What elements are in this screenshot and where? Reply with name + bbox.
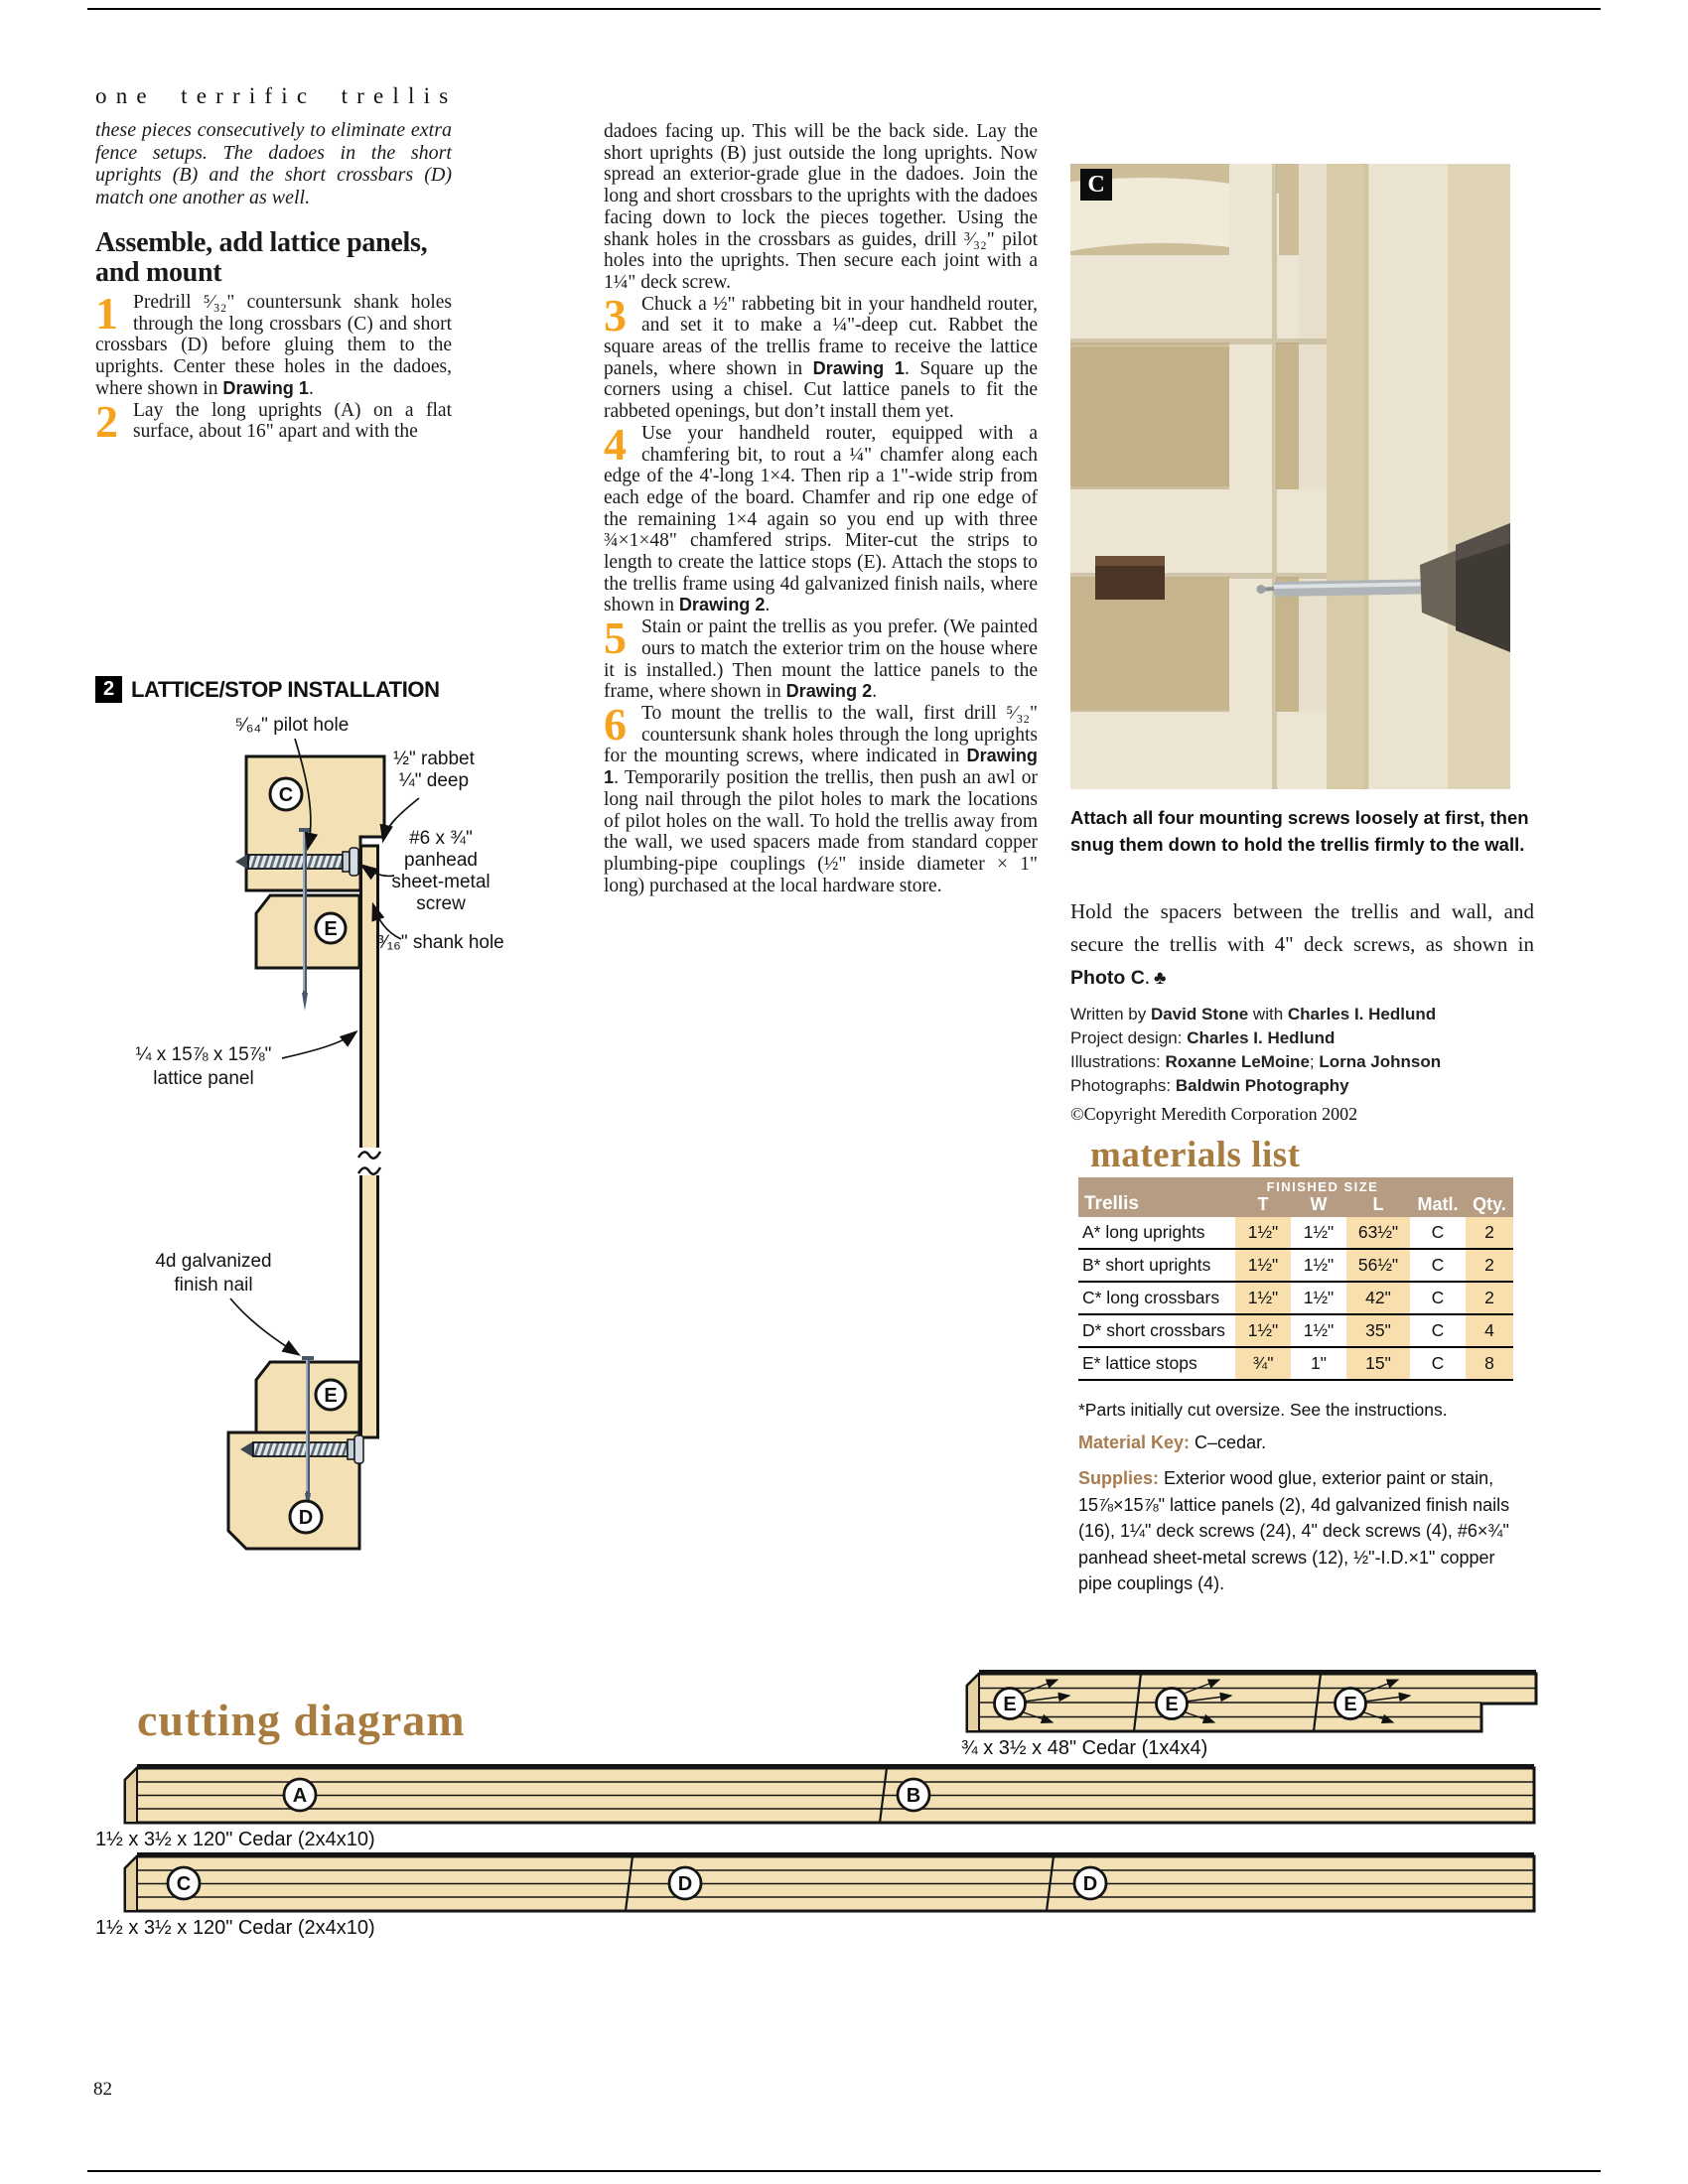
part-w: 1½": [1291, 1282, 1346, 1314]
part-t: 1½": [1235, 1314, 1291, 1347]
photo-caption: Attach all four mounting screws loosely …: [1070, 804, 1529, 858]
materials-list-title: materials list: [1090, 1134, 1300, 1176]
table-row: C* long crossbars 1½" 1½" 42" C 2: [1078, 1282, 1513, 1314]
step-5-number: 5: [604, 619, 635, 657]
part-matl: C: [1410, 1314, 1466, 1347]
part-qty: 8: [1466, 1347, 1513, 1380]
board-part-letter: A: [293, 1785, 307, 1807]
figure-title: LATTICE/STOP INSTALLATION: [131, 677, 440, 703]
part-circle-e-top: E: [316, 913, 346, 943]
closing-text: Hold the spacers between the trellis and…: [1070, 899, 1534, 989]
photo-c: C: [1070, 164, 1510, 789]
nail-label-line2: finish nail: [174, 1275, 252, 1296]
step-5-text: Stain or paint the trellis as you prefer…: [604, 616, 1038, 702]
middle-column: dadoes facing up. This will be the back …: [604, 121, 1038, 896]
step-2: 2Lay the long uprights (A) on a flat sur…: [95, 400, 452, 443]
part-l: 35": [1346, 1314, 1410, 1347]
part-l: 56½": [1346, 1249, 1410, 1282]
header-finished-size: FINISHED SIZE: [1235, 1177, 1410, 1194]
table-row: D* short crossbars 1½" 1½" 35" C 4: [1078, 1314, 1513, 1347]
board-part-letter: E: [1003, 1694, 1016, 1715]
figure-number-badge: 2: [95, 676, 122, 703]
header-matl: Matl.: [1410, 1177, 1466, 1217]
board-part-letter: E: [1165, 1694, 1178, 1715]
part-l: 63½": [1346, 1217, 1410, 1249]
table-row: B* short uprights 1½" 1½" 56½" C 2: [1078, 1249, 1513, 1282]
part-name: D* short crossbars: [1078, 1314, 1235, 1347]
part-t: 1½": [1235, 1282, 1291, 1314]
copper-spacer: [1095, 556, 1165, 600]
board-c-d-d-caption: 1½ x 3½ x 120" Cedar (2x4x10): [95, 1917, 375, 1940]
header-w: W: [1291, 1194, 1346, 1217]
figure-header: 2 LATTICE/STOP INSTALLATION: [95, 676, 440, 703]
board-e: E E E: [967, 1673, 1536, 1732]
part-circle-d: D: [290, 1501, 322, 1533]
page-number: 82: [93, 2079, 112, 2101]
closing-paragraph: Hold the spacers between the trellis and…: [1070, 895, 1534, 995]
materials-footnote: *Parts initially cut oversize. See the i…: [1078, 1400, 1448, 1421]
step-2-text: Lay the long uprights (A) on a flat surf…: [133, 400, 452, 443]
lattice-panel-label-line1: ¼ x 15⅞ x 15⅞": [136, 1044, 272, 1065]
cutting-diagram-boards: E E E A B: [91, 1660, 1549, 1961]
part-qty: 2: [1466, 1217, 1513, 1249]
part-letter-d: D: [299, 1507, 313, 1529]
pilot-hole-label: ⁵⁄₆₄" pilot hole: [235, 715, 350, 736]
part-matl: C: [1410, 1347, 1466, 1380]
step-1-text: Predrill ⁵⁄₃₂" countersunk shank holes t…: [95, 292, 452, 399]
part-t: ¾": [1235, 1347, 1291, 1380]
article-title: one terrific trellis: [95, 83, 457, 109]
material-key-value: C–cedar.: [1190, 1433, 1266, 1452]
header-t: T: [1235, 1194, 1291, 1217]
part-letter-e-top: E: [324, 918, 337, 940]
board-part-letter: D: [678, 1873, 692, 1895]
part-t: 1½": [1235, 1249, 1291, 1282]
screw-label-line3: sheet-metal: [391, 872, 490, 892]
board-part-letter: B: [907, 1785, 920, 1807]
page-bottom-rule: [87, 2170, 1601, 2172]
part-name: C* long crossbars: [1078, 1282, 1235, 1314]
header-trellis: Trellis: [1078, 1177, 1235, 1217]
section-heading: Assemble, add lattice panels, and mount: [95, 228, 452, 288]
part-t: 1½": [1235, 1217, 1291, 1249]
page-top-rule: [87, 8, 1601, 10]
board-e-caption: ¾ x 3½ x 48" Cedar (1x4x4): [961, 1737, 1207, 1760]
copyright-line: ©Copyright Meredith Corporation 2002: [1070, 1102, 1532, 1126]
step-3-text: Chuck a ½" rabbeting bit in your handhel…: [604, 294, 1038, 423]
continuation-paragraph: dadoes facing up. This will be the back …: [604, 121, 1038, 294]
step-4: 4Use your handheld router, equipped with…: [604, 423, 1038, 616]
magazine-page: one terrific trellis these pieces consec…: [0, 0, 1688, 2184]
screw-label-line4: screw: [416, 893, 466, 914]
credit-photographs: Photographs: Baldwin Photography: [1070, 1074, 1532, 1098]
supplies-label: Supplies:: [1078, 1468, 1159, 1488]
step-3-number: 3: [604, 297, 635, 335]
part-l: 15": [1346, 1347, 1410, 1380]
left-column: these pieces consecutively to eliminate …: [95, 119, 452, 443]
credit-project-design: Project design: Charles I. Hedlund: [1070, 1026, 1532, 1050]
part-circle-c: C: [270, 778, 302, 810]
table-row: E* lattice stops ¾" 1" 15" C 8: [1078, 1347, 1513, 1380]
continuation-text: dadoes facing up. This will be the back …: [604, 121, 1038, 293]
header-l: L: [1346, 1194, 1410, 1217]
step-6: 6To mount the trellis to the wall, first…: [604, 703, 1038, 896]
part-name: A* long uprights: [1078, 1217, 1235, 1249]
photo-c-artwork: [1070, 164, 1510, 789]
step-4-text: Use your handheld router, equipped with …: [604, 423, 1038, 616]
step-1-number: 1: [95, 295, 127, 333]
step-2-number: 2: [95, 403, 127, 441]
part-circle-e-bottom: E: [316, 1380, 346, 1410]
photo-c-label: C: [1080, 169, 1112, 201]
part-letter-e-bottom: E: [324, 1385, 337, 1407]
photo-c-letter: C: [1087, 172, 1104, 199]
part-w: 1": [1291, 1347, 1346, 1380]
part-matl: C: [1410, 1249, 1466, 1282]
part-name: B* short uprights: [1078, 1249, 1235, 1282]
rabbet-label-line2: ¼" deep: [399, 770, 469, 791]
part-matl: C: [1410, 1282, 1466, 1314]
credit-illustrations: Illustrations: Roxanne LeMoine; Lorna Jo…: [1070, 1050, 1532, 1074]
step-1: 1Predrill ⁵⁄₃₂" countersunk shank holes …: [95, 292, 452, 400]
header-qty: Qty.: [1466, 1177, 1513, 1217]
part-letter-c: C: [279, 784, 293, 806]
rabbet-label-line1: ½" rabbet: [393, 749, 475, 769]
board-a-b-caption: 1½ x 3½ x 120" Cedar (2x4x10): [95, 1829, 375, 1851]
part-qty: 2: [1466, 1282, 1513, 1314]
nail-label-line1: 4d galvanized: [155, 1251, 271, 1272]
supplies-block: Supplies: Exterior wood glue, exterior p…: [1078, 1465, 1531, 1597]
step-4-number: 4: [604, 426, 635, 464]
step-6-number: 6: [604, 706, 635, 744]
board-a-b: A B: [125, 1767, 1534, 1824]
part-l: 42": [1346, 1282, 1410, 1314]
table-row: A* long uprights 1½" 1½" 63½" C 2: [1078, 1217, 1513, 1249]
credit-written-by: Written by David Stone with Charles I. H…: [1070, 1003, 1532, 1026]
part-w: 1½": [1291, 1217, 1346, 1249]
part-qty: 4: [1466, 1314, 1513, 1347]
step-5: 5Stain or paint the trellis as you prefe…: [604, 616, 1038, 703]
material-key-label: Material Key:: [1078, 1433, 1190, 1452]
part-w: 1½": [1291, 1314, 1346, 1347]
lattice-panel-label-line2: lattice panel: [153, 1068, 253, 1089]
credits-block: Written by David Stone with Charles I. H…: [1070, 1003, 1532, 1126]
materials-table: Trellis FINISHED SIZE Matl. Qty. T W L A…: [1078, 1177, 1513, 1381]
end-mark-tree-icon: ♣: [1150, 968, 1166, 989]
screw-label-line1: #6 x ¾": [409, 828, 473, 849]
step-6-text: To mount the trellis to the wall, first …: [604, 703, 1038, 896]
lattice-stop-diagram: C E E D ⁵⁄₆₄" pilot hole ½" rabbet ¼" de…: [91, 703, 508, 1581]
board-part-letter: D: [1083, 1873, 1097, 1895]
part-matl: C: [1410, 1217, 1466, 1249]
part-qty: 2: [1466, 1249, 1513, 1282]
part-name: E* lattice stops: [1078, 1347, 1235, 1380]
part-w: 1½": [1291, 1249, 1346, 1282]
screw-label-line2: panhead: [404, 850, 478, 871]
material-key: Material Key: C–cedar.: [1078, 1433, 1266, 1453]
board-part-letter: C: [177, 1873, 191, 1895]
intro-paragraph: these pieces consecutively to eliminate …: [95, 119, 452, 208]
materials-table-header: Trellis FINISHED SIZE Matl. Qty. T W L: [1078, 1177, 1513, 1217]
board-c-d-d: C D D: [125, 1855, 1534, 1912]
step-3: 3Chuck a ½" rabbeting bit in your handhe…: [604, 294, 1038, 423]
board-part-letter: E: [1343, 1694, 1356, 1715]
shank-hole-label: ³⁄₁₆" shank hole: [377, 932, 504, 953]
